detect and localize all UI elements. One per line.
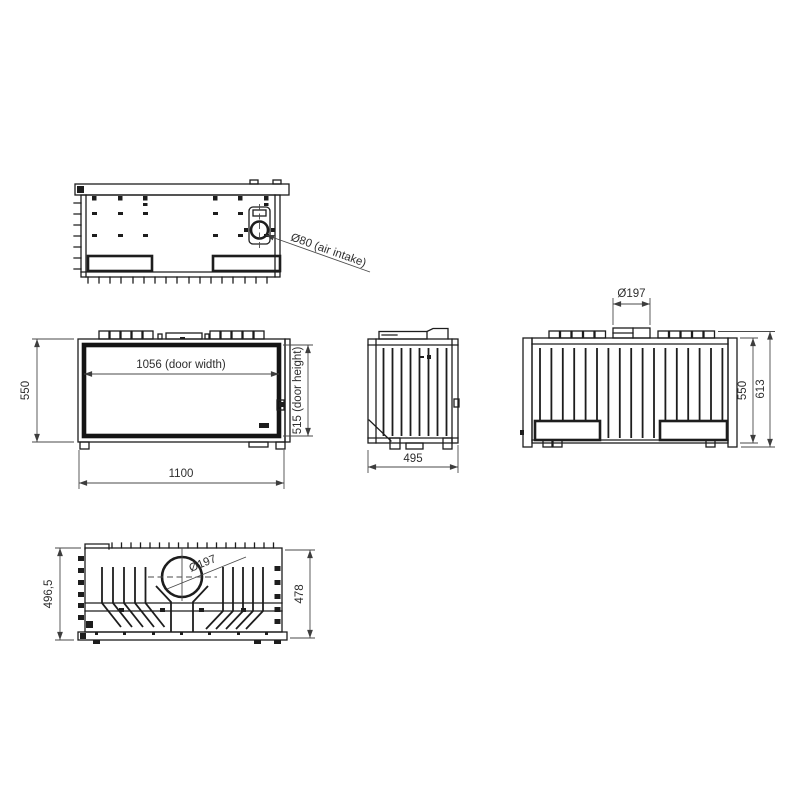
dim-flue-diameter-rear: Ø197 bbox=[613, 288, 650, 325]
dim-door-width: 1056 (door width) bbox=[84, 359, 279, 374]
top-view: Ø197 496,5 478 bbox=[43, 543, 315, 644]
rear-feet bbox=[520, 430, 715, 447]
fastener-marks bbox=[92, 196, 269, 237]
left-bracket bbox=[88, 256, 152, 271]
left-edge-tick-marks bbox=[78, 556, 84, 620]
bottom-edge-ticks bbox=[88, 277, 267, 283]
air-intake-label: Ø80 (air intake) bbox=[289, 232, 368, 270]
front-feet bbox=[80, 442, 285, 449]
rear-left-bracket bbox=[535, 421, 600, 440]
air-intake-callout: Ø80 (air intake) bbox=[266, 232, 370, 272]
rear-outline bbox=[532, 338, 728, 443]
door-height-label: 515 (door height) bbox=[292, 347, 304, 435]
dim-top-depth-with-base: 496,5 bbox=[43, 548, 81, 640]
brand-badge bbox=[259, 423, 269, 428]
front-view: 550 1056 (door width) 515 (door height) … bbox=[20, 331, 313, 489]
corner-mark bbox=[77, 186, 84, 193]
rear-top-tabs bbox=[549, 331, 715, 338]
flue-collar bbox=[613, 328, 650, 338]
rear-flue-diameter-label: Ø197 bbox=[617, 288, 645, 300]
dim-door-height: 515 (door height) bbox=[283, 345, 313, 436]
front-overall-width-label: 1100 bbox=[169, 468, 194, 480]
firebox-outline bbox=[78, 339, 285, 442]
top-depth-with-base-label: 496,5 bbox=[43, 580, 55, 609]
top-left-ribs bbox=[102, 567, 165, 627]
rear-body-height-label: 550 bbox=[737, 381, 749, 400]
side-view: 495 bbox=[368, 329, 459, 474]
dim-top-depth: 478 bbox=[285, 550, 315, 638]
underside-view: Ø80 (air intake) bbox=[74, 180, 370, 283]
right-edge-tick-marks bbox=[275, 566, 281, 624]
dim-front-overall-width: 1100 bbox=[79, 450, 284, 489]
fireplace-dimension-drawing: Ø80 (air intake) 550 bbox=[0, 0, 800, 800]
air-intake bbox=[244, 204, 275, 248]
top-edge-ticks bbox=[112, 543, 274, 548]
top-flue-diameter-label: Ø197 bbox=[187, 553, 218, 575]
door-width-label: 1056 (door width) bbox=[136, 359, 226, 371]
dim-front-overall-height: 550 bbox=[20, 339, 74, 442]
rear-ribs bbox=[540, 348, 722, 438]
rear-right-bracket bbox=[660, 421, 727, 440]
technical-drawing-page: Ø80 (air intake) 550 bbox=[0, 0, 800, 800]
rear-overall-height-label: 613 bbox=[755, 379, 767, 398]
side-ribs bbox=[384, 348, 447, 436]
side-depth-label: 495 bbox=[403, 453, 422, 465]
left-edge-ticks bbox=[74, 203, 81, 269]
side-outline bbox=[368, 339, 458, 443]
rear-view: Ø197 550 613 bbox=[520, 288, 775, 447]
top-right-ribs bbox=[206, 567, 263, 629]
top-convection-tabs bbox=[99, 331, 264, 339]
front-overall-height-label: 550 bbox=[20, 381, 32, 400]
right-bracket bbox=[213, 256, 280, 271]
top-depth-label: 478 bbox=[294, 584, 306, 603]
